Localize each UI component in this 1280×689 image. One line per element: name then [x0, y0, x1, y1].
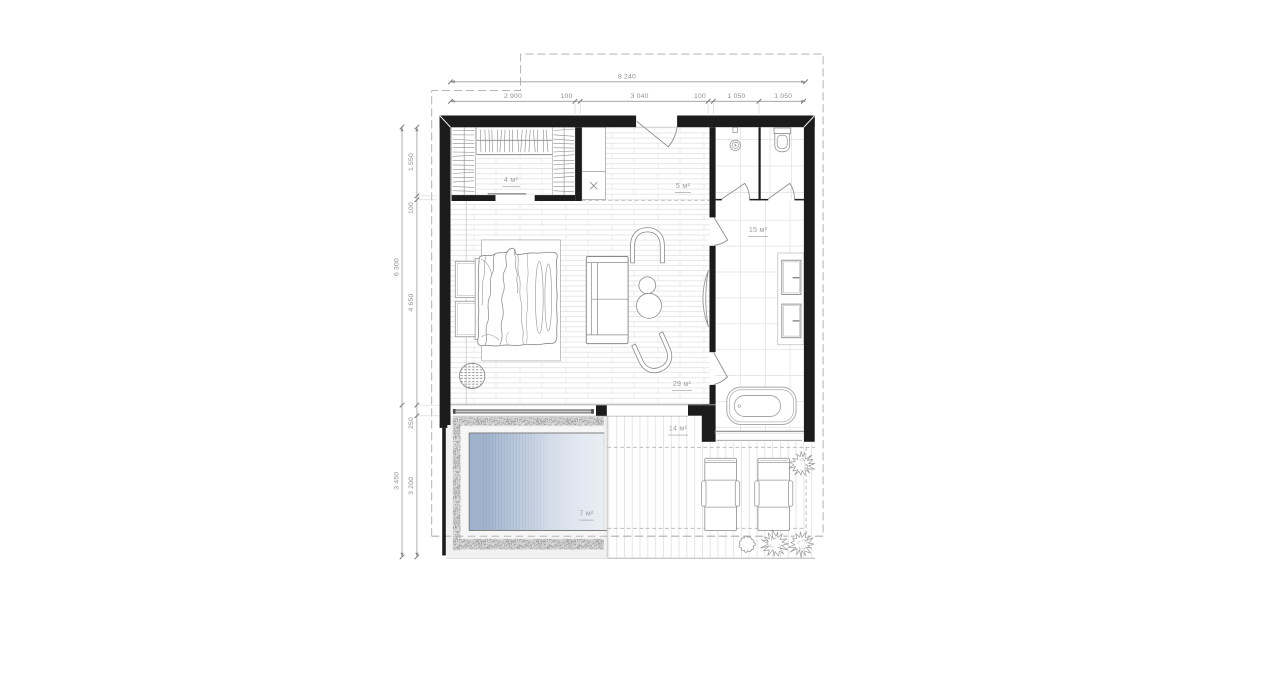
svg-text:29 м²: 29 м² — [673, 379, 692, 388]
svg-text:3 450: 3 450 — [393, 472, 400, 490]
svg-text:5 м²: 5 м² — [676, 181, 691, 190]
svg-text:4 м²: 4 м² — [504, 175, 519, 184]
svg-text:4 650: 4 650 — [408, 293, 415, 311]
svg-text:250: 250 — [408, 417, 415, 429]
svg-text:3 040: 3 040 — [631, 93, 649, 100]
svg-text:100: 100 — [408, 202, 415, 214]
svg-text:1 050: 1 050 — [727, 93, 745, 100]
svg-text:1 550: 1 550 — [408, 153, 415, 171]
svg-text:7 м²: 7 м² — [579, 509, 594, 518]
svg-text:8 240: 8 240 — [618, 74, 636, 81]
svg-text:15 м²: 15 м² — [749, 225, 768, 234]
svg-text:100: 100 — [694, 93, 706, 100]
svg-text:6 300: 6 300 — [393, 258, 400, 276]
svg-text:14 м²: 14 м² — [669, 424, 688, 433]
svg-text:100: 100 — [561, 93, 573, 100]
svg-text:2 900: 2 900 — [504, 93, 522, 100]
svg-text:3 200: 3 200 — [408, 477, 415, 495]
svg-text:1 050: 1 050 — [774, 93, 792, 100]
